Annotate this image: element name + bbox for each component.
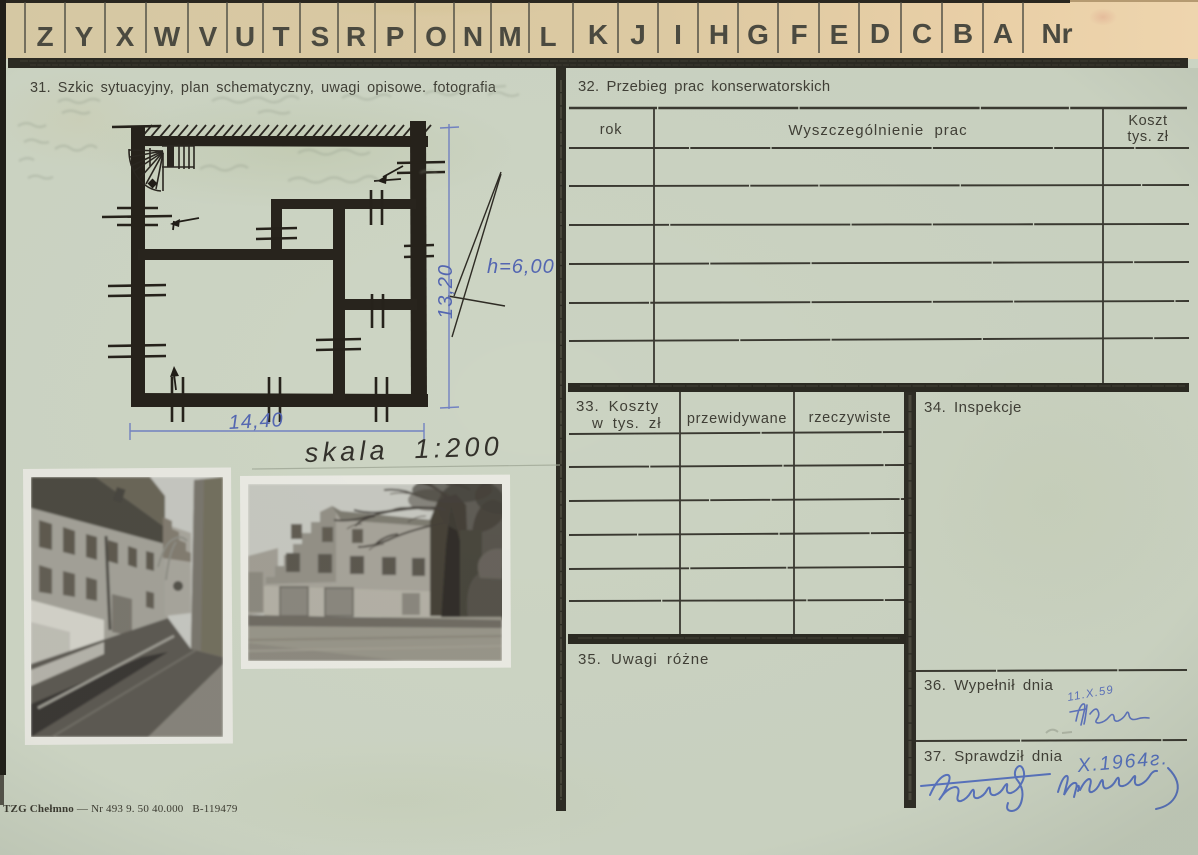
svg-text:M: M <box>498 21 521 52</box>
svg-text:J: J <box>630 19 646 50</box>
svg-text:I: I <box>674 19 682 50</box>
svg-text:R: R <box>346 21 366 52</box>
svg-text:Nr: Nr <box>1041 18 1072 49</box>
svg-text:U: U <box>235 21 255 52</box>
svg-text:E: E <box>830 19 849 50</box>
svg-text:T: T <box>272 21 289 52</box>
svg-text:W: W <box>154 21 181 52</box>
svg-text:B: B <box>953 18 973 49</box>
svg-text:F: F <box>790 19 807 50</box>
svg-text:X: X <box>116 21 135 52</box>
svg-text:L: L <box>539 21 556 52</box>
svg-text:S: S <box>311 21 330 52</box>
svg-text:Z: Z <box>36 21 53 52</box>
svg-text:V: V <box>199 21 218 52</box>
svg-text:C: C <box>912 18 932 49</box>
svg-text:P: P <box>386 21 405 52</box>
svg-text:A: A <box>993 18 1013 49</box>
svg-text:G: G <box>747 19 769 50</box>
svg-text:Y: Y <box>75 21 94 52</box>
svg-text:H: H <box>709 19 729 50</box>
svg-text:O: O <box>425 21 447 52</box>
svg-text:D: D <box>870 18 890 49</box>
svg-text:N: N <box>463 21 483 52</box>
svg-text:K: K <box>588 19 608 50</box>
